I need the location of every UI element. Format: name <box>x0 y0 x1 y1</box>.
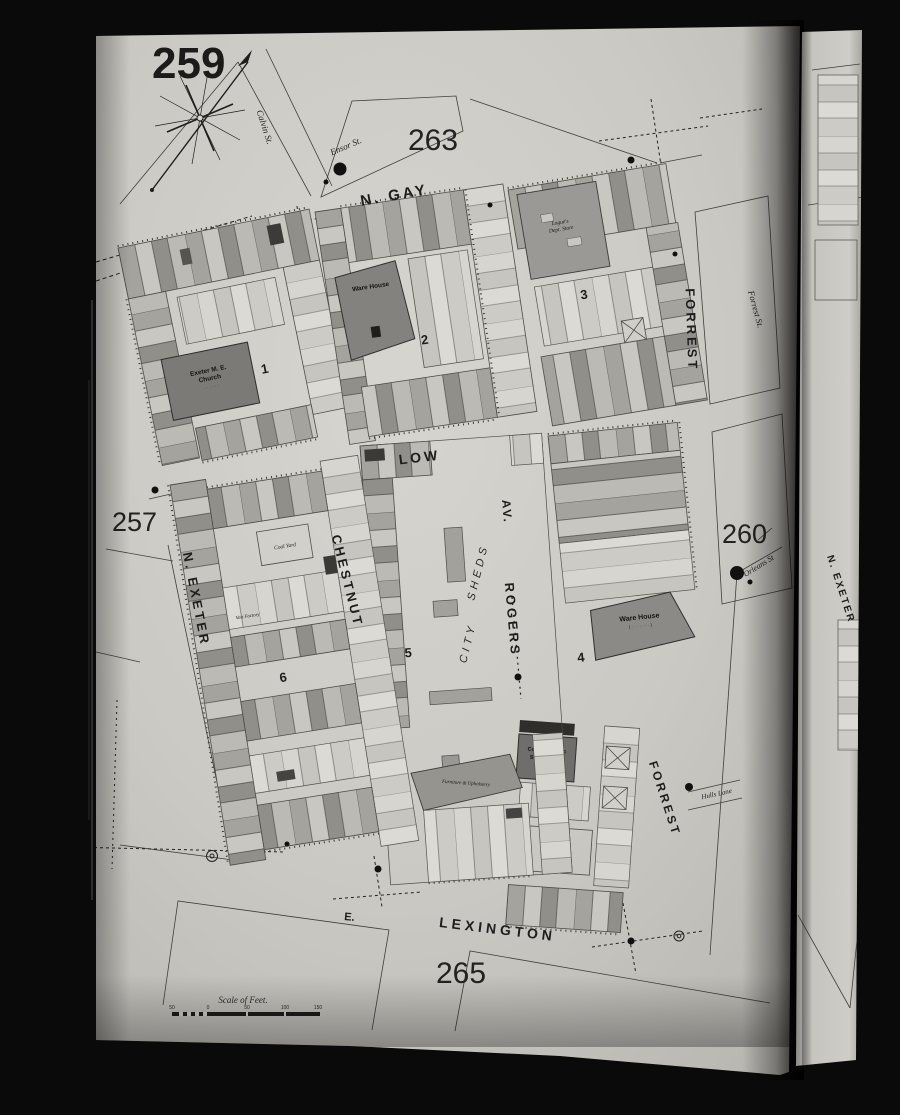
scanned-map-page: Exeter M. E. Church · · · · · · 1 Ware H… <box>0 0 900 1115</box>
block-number-5: 5 <box>404 645 412 660</box>
street-rogers-av: AV. <box>499 499 515 524</box>
block-2: Ware House 2 <box>315 182 538 444</box>
sheet-number: 259 <box>152 39 225 88</box>
street-e-prefix: E. <box>344 911 355 924</box>
sanborn-map-scan: Exeter M. E. Church · · · · · · 1 Ware H… <box>0 0 900 1115</box>
adjacent-sheet-top: 263 <box>408 124 458 157</box>
next-page-strip: N. EXETER <box>796 30 864 1066</box>
street-forrest-upper: FORREST <box>683 288 701 372</box>
book-gutter-shadow <box>742 20 804 1080</box>
